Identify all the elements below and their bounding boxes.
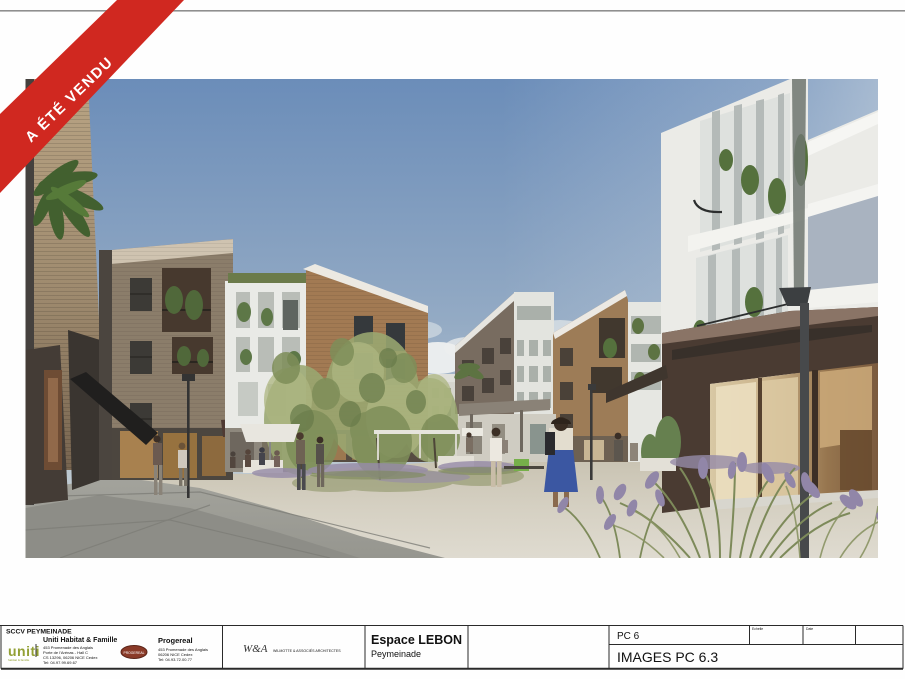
- svg-text:Echelle: Echelle: [752, 627, 763, 631]
- svg-text:W&A: W&A: [243, 643, 268, 655]
- svg-text:Espace LEBON: Espace LEBON: [371, 633, 462, 647]
- svg-text:SCCV PEYMEINADE: SCCV PEYMEINADE: [6, 629, 72, 636]
- svg-text:Date: Date: [806, 627, 813, 631]
- svg-text:PC 6: PC 6: [617, 631, 640, 642]
- svg-text:Progereal: Progereal: [158, 636, 193, 645]
- svg-text:habitat & famille: habitat & famille: [8, 658, 30, 662]
- svg-text:PROGEREAL: PROGEREAL: [123, 651, 144, 655]
- svg-text:WILMOTTE & ASSOCIÉS ARCHITECTE: WILMOTTE & ASSOCIÉS ARCHITECTES: [273, 648, 341, 653]
- svg-text:Uniti Habitat & Famille: Uniti Habitat & Famille: [43, 637, 117, 644]
- svg-text:uniti: uniti: [8, 643, 40, 659]
- svg-text:IMAGES PC 6.3: IMAGES PC 6.3: [617, 649, 718, 665]
- svg-text:Peymeinade: Peymeinade: [371, 649, 421, 659]
- svg-text:Tel: 04.97.99.69.67: Tel: 04.97.99.69.67: [43, 660, 78, 665]
- svg-text:Tel: 04.93.72.00.77: Tel: 04.93.72.00.77: [158, 657, 193, 662]
